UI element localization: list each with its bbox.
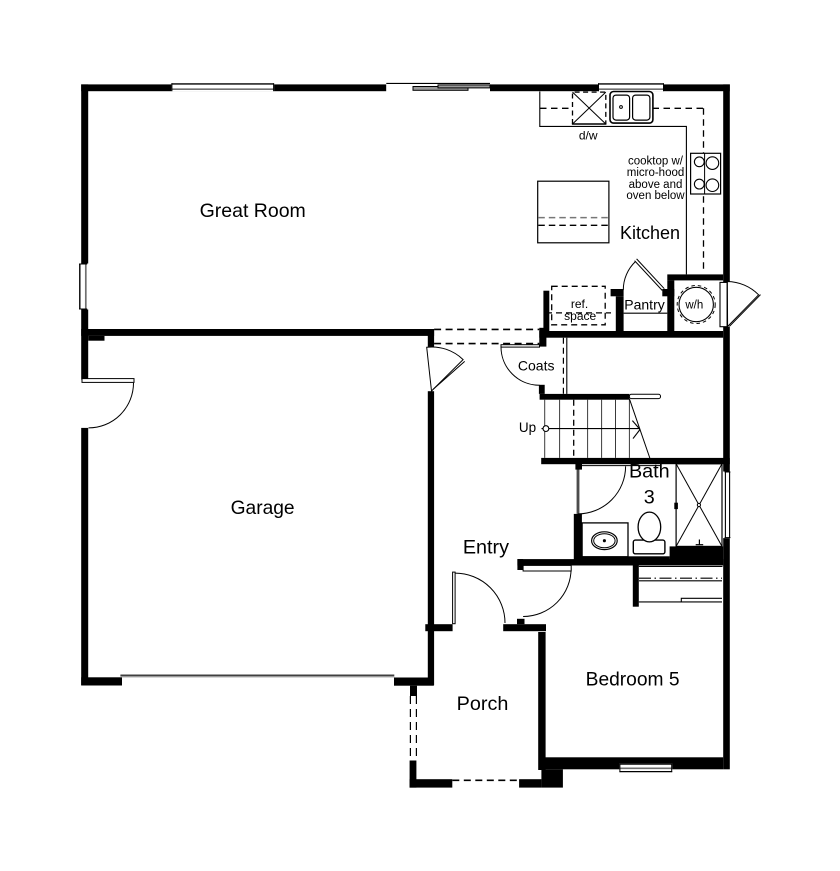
svg-text:w/h: w/h bbox=[684, 300, 703, 312]
svg-text:Great Room: Great Room bbox=[200, 200, 306, 222]
svg-text:Porch: Porch bbox=[457, 693, 509, 715]
svg-text:oven below: oven below bbox=[626, 190, 685, 202]
svg-text:cooktop w/: cooktop w/ bbox=[628, 156, 684, 168]
svg-text:Coats: Coats bbox=[518, 358, 555, 374]
svg-text:above and: above and bbox=[629, 179, 683, 191]
svg-text:3: 3 bbox=[644, 486, 655, 508]
svg-text:Kitchen: Kitchen bbox=[620, 223, 680, 243]
svg-text:Bath: Bath bbox=[629, 461, 670, 483]
svg-text:Bedroom 5: Bedroom 5 bbox=[586, 670, 680, 691]
svg-text:Entry: Entry bbox=[463, 537, 509, 559]
svg-text:Pantry: Pantry bbox=[624, 297, 664, 313]
svg-text:micro-hood: micro-hood bbox=[627, 167, 685, 179]
svg-text:Garage: Garage bbox=[231, 498, 295, 519]
svg-text:Up: Up bbox=[519, 420, 536, 435]
svg-text:space: space bbox=[564, 309, 596, 323]
svg-text:d/w: d/w bbox=[579, 129, 598, 143]
